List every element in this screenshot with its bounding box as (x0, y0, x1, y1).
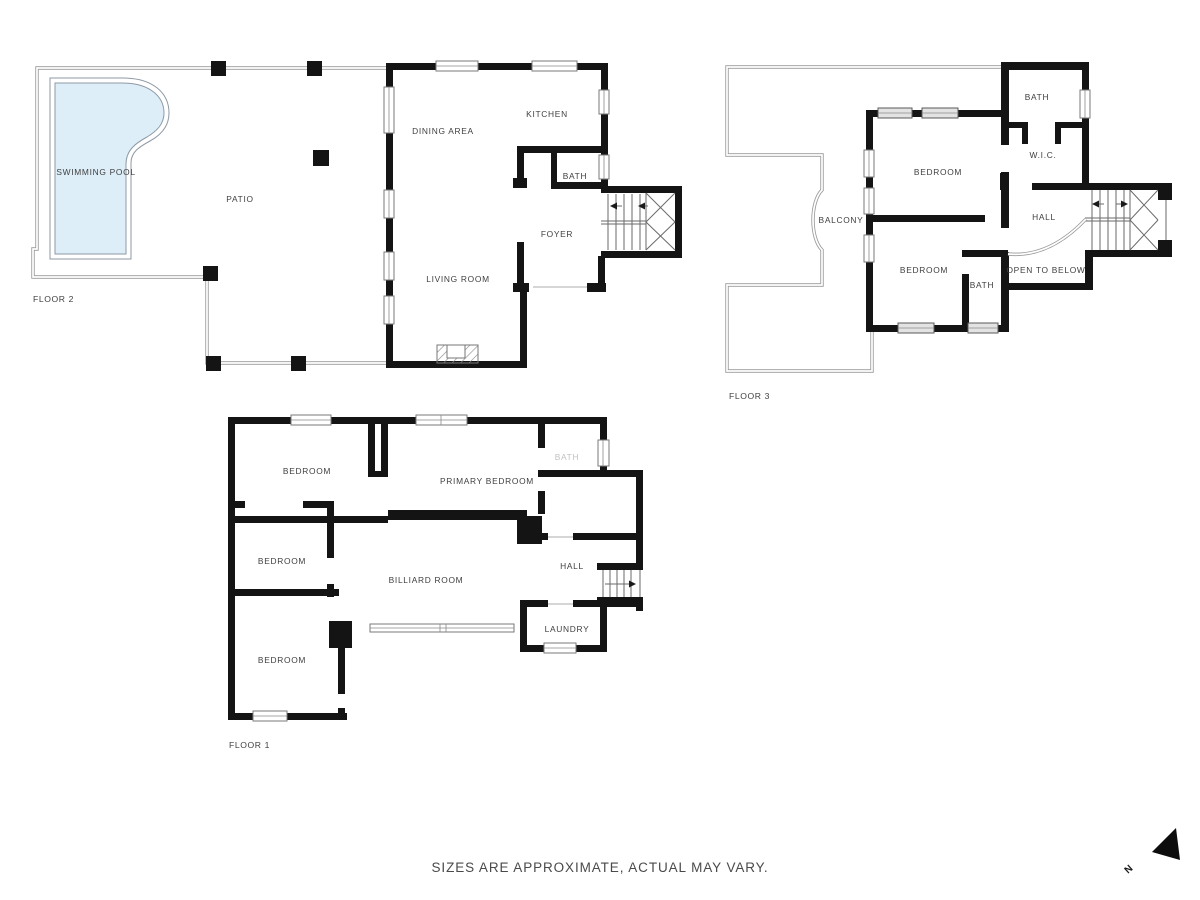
room-label-foyer: FOYER (541, 229, 573, 239)
room-label-bedroom-f3-bottom: BEDROOM (900, 265, 948, 275)
room-label-balcony: BALCONY (819, 215, 864, 225)
floorplan-canvas: SWIMMING POOL PATIO DINING AREA KITCHEN … (0, 0, 1200, 900)
room-label-hall-f1: HALL (560, 561, 584, 571)
floor3-plan: BATH W.I.C. BEDROOM BALCONY HALL BEDROOM… (727, 62, 1172, 401)
floor1-stairs (603, 570, 640, 597)
room-label-dining-area: DINING AREA (412, 126, 474, 136)
room-label-bath-f1: BATH (555, 452, 580, 462)
floor3-label: FLOOR 3 (729, 391, 770, 401)
room-label-patio: PATIO (226, 194, 253, 204)
disclaimer-text: SIZES ARE APPROXIMATE, ACTUAL MAY VARY. (432, 860, 769, 875)
floor2-walls (386, 63, 608, 368)
room-label-swimming-pool: SWIMMING POOL (56, 167, 135, 177)
room-label-living-room: LIVING ROOM (426, 274, 490, 284)
room-label-bath-f3-bottom: BATH (970, 280, 995, 290)
floor1-label: FLOOR 1 (229, 740, 270, 750)
room-label-hall-f3: HALL (1032, 212, 1056, 222)
north-arrow-icon: N (1123, 828, 1180, 876)
floor2-label: FLOOR 2 (33, 294, 74, 304)
compass-north-letter: N (1123, 863, 1136, 876)
floor2-stairs (601, 186, 682, 258)
room-label-bath-f2: BATH (563, 171, 588, 181)
room-label-bedroom-f1-bl: BEDROOM (258, 655, 306, 665)
room-label-primary-bedroom: PRIMARY BEDROOM (440, 476, 534, 486)
floor3-walls (866, 62, 1172, 332)
room-label-kitchen: KITCHEN (526, 109, 568, 119)
floor2-plan: SWIMMING POOL PATIO DINING AREA KITCHEN … (33, 61, 682, 371)
floor2-windows (384, 61, 609, 324)
room-label-bath-f3-top: BATH (1025, 92, 1050, 102)
room-label-billiard-room: BILLIARD ROOM (389, 575, 464, 585)
room-label-bedroom-f3-top: BEDROOM (914, 167, 962, 177)
room-label-laundry: LAUNDRY (545, 624, 590, 634)
floor1-plan: BEDROOM PRIMARY BEDROOM BATH BEDROOM BIL… (228, 415, 643, 750)
floorplan-svg: SWIMMING POOL PATIO DINING AREA KITCHEN … (0, 0, 1200, 900)
patio-posts (203, 61, 329, 371)
room-label-bedroom-f1-ml: BEDROOM (258, 556, 306, 566)
room-label-bedroom-f1-tl: BEDROOM (283, 466, 331, 476)
fireplace (437, 345, 478, 363)
room-label-open-to-below: OPEN TO BELOW (1006, 265, 1085, 275)
room-label-wic: W.I.C. (1030, 150, 1057, 160)
floor3-stairs (1008, 190, 1166, 254)
